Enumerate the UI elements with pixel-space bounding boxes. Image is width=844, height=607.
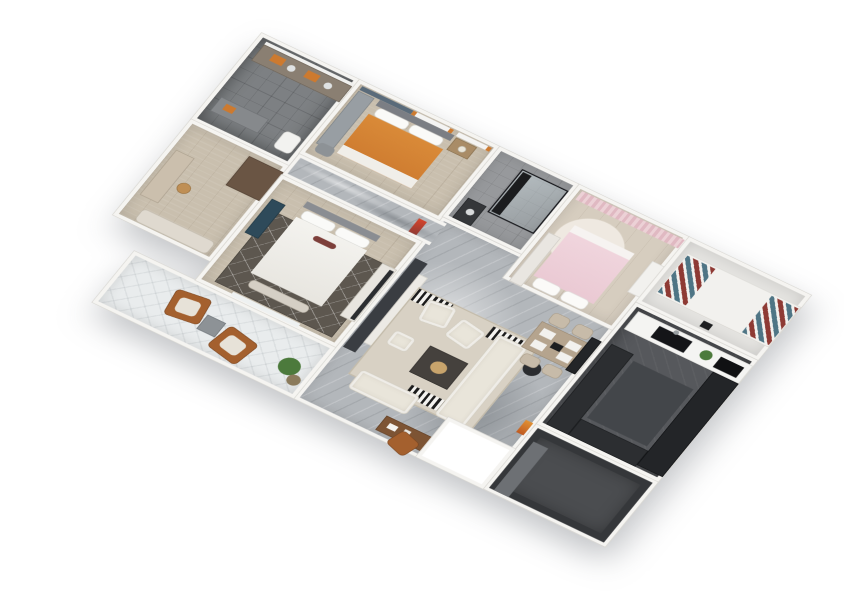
table-lamp: [456, 145, 468, 154]
centerpiece: [550, 342, 564, 352]
orange-towel: [303, 70, 321, 82]
placemat: [530, 339, 548, 351]
dark-vanity: [452, 198, 486, 226]
sink: [464, 208, 476, 217]
black-sink: [650, 326, 692, 353]
orange-towel: [269, 54, 287, 66]
vanity-counter: [140, 150, 195, 204]
sink: [285, 64, 297, 73]
brass-tray: [427, 359, 450, 376]
stool: [174, 181, 194, 196]
chair-cushion: [173, 296, 202, 317]
red-wall-art: [408, 218, 427, 235]
sink: [322, 81, 334, 90]
toilet: [272, 130, 303, 155]
potted-plant: [697, 348, 715, 362]
counter: [210, 97, 269, 134]
floor-tablet: [699, 321, 713, 331]
vanity-counter: [251, 44, 352, 102]
bench: [134, 208, 216, 255]
orange-curtain: [485, 146, 492, 151]
orange-towel: [222, 104, 236, 114]
chair-cushion: [218, 334, 249, 357]
accent-pillow: [312, 235, 338, 250]
placemat: [539, 328, 557, 340]
apartment-plan: [33, 33, 811, 575]
papers: [386, 423, 398, 432]
floor-plan-render: [0, 0, 844, 607]
